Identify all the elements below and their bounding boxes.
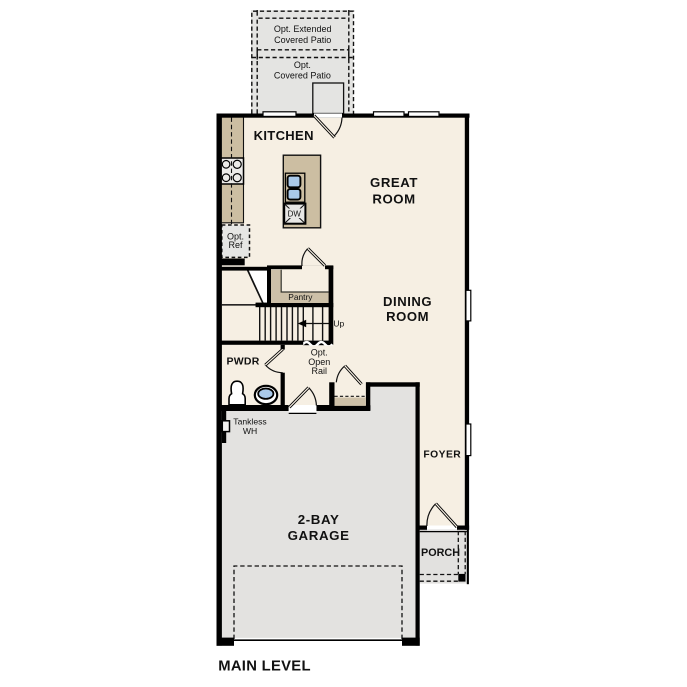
svg-text:Covered Patio: Covered Patio bbox=[274, 35, 331, 45]
svg-text:Opt.: Opt. bbox=[294, 60, 311, 70]
svg-text:Up: Up bbox=[333, 318, 344, 328]
svg-text:Rail: Rail bbox=[312, 366, 328, 376]
svg-text:Pantry: Pantry bbox=[288, 292, 313, 302]
svg-text:PORCH: PORCH bbox=[421, 547, 460, 559]
svg-text:Opt. Extended: Opt. Extended bbox=[274, 24, 332, 34]
svg-text:FOYER: FOYER bbox=[423, 449, 461, 460]
svg-text:DW: DW bbox=[288, 210, 302, 219]
svg-text:MAIN LEVEL: MAIN LEVEL bbox=[218, 658, 311, 674]
svg-text:ROOM: ROOM bbox=[372, 191, 415, 206]
svg-text:Ref: Ref bbox=[228, 240, 243, 250]
svg-text:Covered Patio: Covered Patio bbox=[274, 71, 331, 81]
svg-text:PWDR: PWDR bbox=[226, 356, 259, 368]
svg-text:WH: WH bbox=[243, 426, 257, 436]
svg-text:GARAGE: GARAGE bbox=[288, 528, 350, 543]
svg-text:Tankless: Tankless bbox=[233, 416, 266, 426]
svg-text:ROOM: ROOM bbox=[386, 309, 429, 324]
svg-text:KITCHEN: KITCHEN bbox=[254, 128, 314, 143]
svg-text:2-BAY: 2-BAY bbox=[298, 512, 340, 527]
svg-text:DINING: DINING bbox=[383, 294, 432, 309]
svg-text:GREAT: GREAT bbox=[370, 175, 418, 190]
